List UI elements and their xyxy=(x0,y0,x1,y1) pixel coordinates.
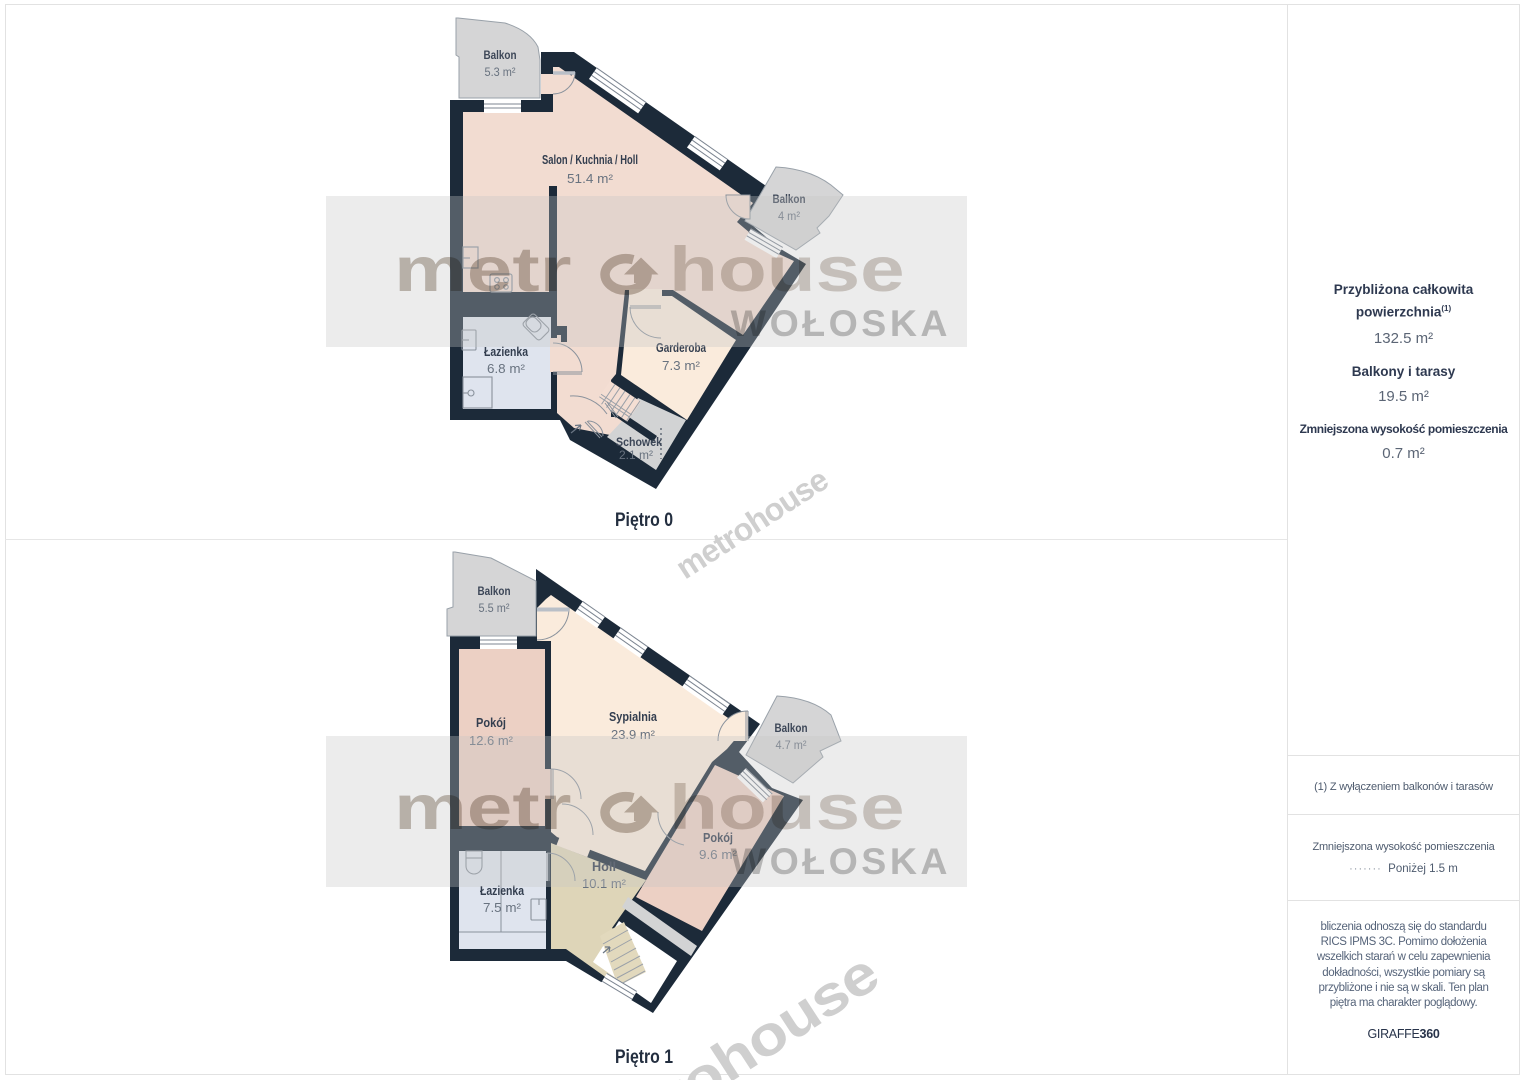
svg-text:5.3 m²: 5.3 m² xyxy=(485,65,516,79)
svg-text:2.1 m²: 2.1 m² xyxy=(619,448,653,462)
svg-text:7.5 m²: 7.5 m² xyxy=(483,900,522,915)
svg-text:WOŁOSKA: WOŁOSKA xyxy=(731,302,951,344)
svg-text:house: house xyxy=(669,773,905,843)
svg-text:Pokój: Pokój xyxy=(476,715,506,730)
svg-text:Schowek: Schowek xyxy=(616,435,662,449)
svg-text:Sypialnia: Sypialnia xyxy=(609,709,658,724)
svg-text:metr: metr xyxy=(394,773,571,843)
svg-text:6.8 m²: 6.8 m² xyxy=(487,361,526,376)
svg-text:51.4 m²: 51.4 m² xyxy=(567,171,614,186)
svg-text:5.5 m²: 5.5 m² xyxy=(479,601,510,615)
svg-text:Balkon: Balkon xyxy=(484,48,517,62)
svg-text:Piętro 0: Piętro 0 xyxy=(615,510,673,531)
svg-text:Balkon: Balkon xyxy=(478,584,511,598)
svg-text:7.3 m²: 7.3 m² xyxy=(662,358,701,373)
svg-text:metrohouse: metrohouse xyxy=(669,461,834,586)
svg-text:Salon / Kuchnia / Holl: Salon / Kuchnia / Holl xyxy=(542,152,638,167)
svg-text:metr: metr xyxy=(394,235,571,305)
svg-text:Balkon: Balkon xyxy=(775,721,808,735)
svg-text:house: house xyxy=(669,235,905,305)
svg-text:WOŁOSKA: WOŁOSKA xyxy=(731,840,951,882)
